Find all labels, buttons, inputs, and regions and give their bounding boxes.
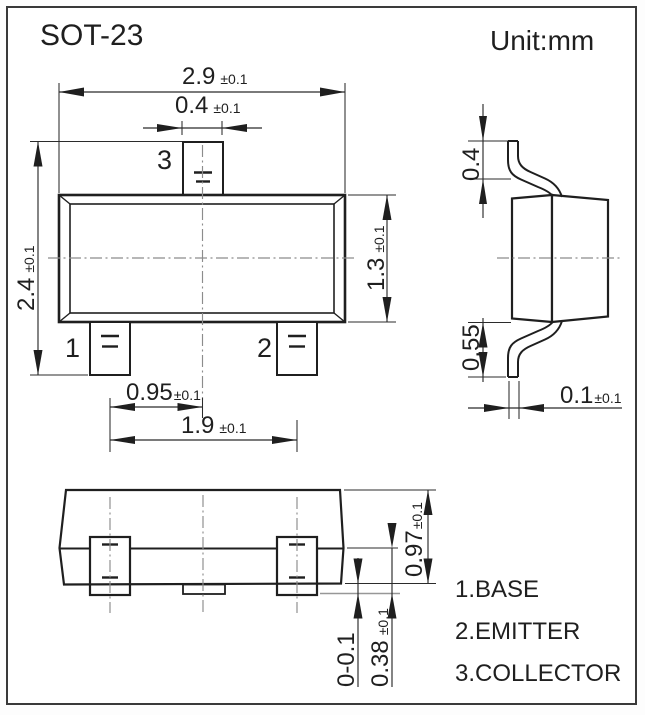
drawing-page: SOT-23 Unit:mm 2.9±0.1 0.4±0.1 3 xyxy=(0,0,645,715)
pin1-label: 1 xyxy=(65,333,80,363)
dim-text: 0-0.1 xyxy=(333,632,360,687)
pin2-label: 2 xyxy=(257,333,272,363)
legend-item-base: 1.BASE xyxy=(455,576,539,603)
unit-label: Unit:mm xyxy=(490,25,594,56)
pin1-lead xyxy=(90,322,130,375)
dim-text: 0.4 xyxy=(458,148,485,181)
package-drawing-svg: SOT-23 Unit:mm 2.9±0.1 0.4±0.1 3 xyxy=(0,0,645,715)
legend-item-collector: 3.COLLECTOR xyxy=(455,660,621,687)
pin3-label: 3 xyxy=(157,145,172,175)
dim-text: 0.55 xyxy=(458,324,485,371)
pin2-lead xyxy=(277,322,317,375)
page-title: SOT-23 xyxy=(40,19,143,52)
legend-item-emitter: 2.EMITTER xyxy=(455,618,580,645)
